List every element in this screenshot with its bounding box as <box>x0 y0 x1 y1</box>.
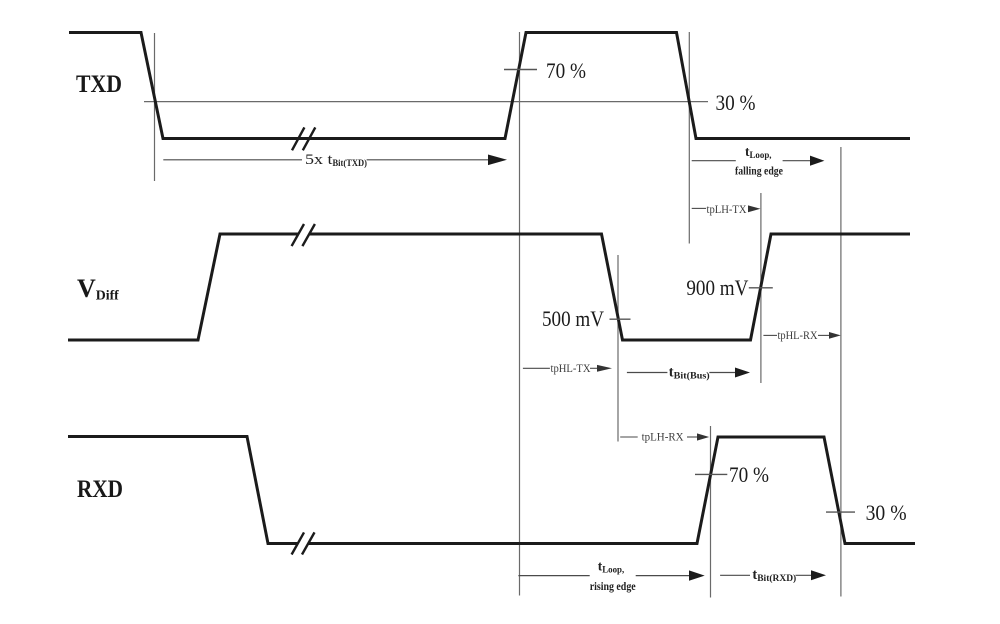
svg-text:tpLH-TX: tpLH-TX <box>707 204 748 216</box>
svg-text:tpHL-TX: tpHL-TX <box>551 363 592 375</box>
svg-text:falling edge: falling edge <box>735 166 783 178</box>
svg-text:RXD: RXD <box>77 476 123 503</box>
svg-text:30 %: 30 % <box>866 500 907 525</box>
svg-text:70 %: 70 % <box>729 462 769 487</box>
svg-text:TXD: TXD <box>76 71 122 98</box>
svg-text:30 %: 30 % <box>716 90 756 115</box>
svg-text:900 mV: 900 mV <box>686 275 748 300</box>
svg-text:70 %: 70 % <box>546 58 586 83</box>
svg-text:tpLH-RX: tpLH-RX <box>642 432 685 444</box>
svg-text:500 mV: 500 mV <box>542 306 604 331</box>
svg-text:rising edge: rising edge <box>590 581 636 593</box>
svg-text:tpHL-RX: tpHL-RX <box>778 330 819 342</box>
